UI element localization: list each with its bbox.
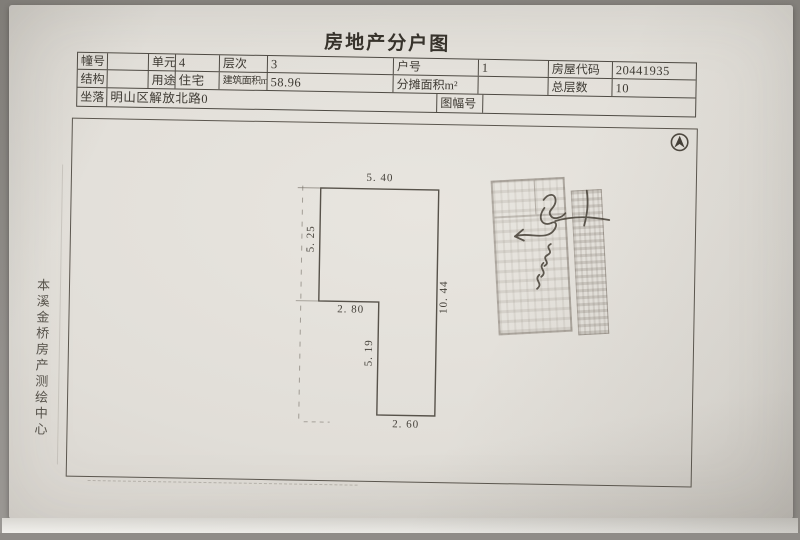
field-value-shared-area bbox=[478, 77, 548, 95]
agency-vertical-label: 本溪金桥房产测绘中心 bbox=[30, 278, 52, 453]
dimension-label-lower-inner-height: 5. 19 bbox=[363, 339, 375, 366]
drawing-area: 5. 40 5. 25 10. 44 2. 80 5. 19 2. 60 bbox=[66, 118, 698, 488]
field-value-floor: 3 bbox=[268, 56, 394, 74]
field-label-building-area: 建筑面积m² bbox=[219, 72, 267, 90]
stamp-divider bbox=[533, 180, 536, 214]
field-label-unit: 单元 bbox=[149, 54, 176, 70]
field-value-total-floors: 10 bbox=[612, 79, 695, 97]
field-value-usage: 住宅 bbox=[175, 71, 219, 89]
north-arrow-icon bbox=[668, 131, 690, 153]
photo-background: 房地产分户图 幢号 单元 4 层次 3 户号 1 房屋代码 20441935 结… bbox=[0, 0, 800, 533]
field-value-household-no: 1 bbox=[479, 60, 549, 77]
field-label-shared-area: 分摊面积m² bbox=[393, 75, 478, 93]
field-label-household-no: 户号 bbox=[394, 58, 479, 75]
field-label-total-floors: 总层数 bbox=[548, 78, 612, 96]
field-label-house-code: 房屋代码 bbox=[549, 61, 613, 78]
field-value-structure bbox=[107, 70, 148, 88]
paper-crease-line bbox=[57, 164, 63, 464]
stamp-left bbox=[491, 177, 573, 336]
dimension-label-top-width: 5. 40 bbox=[366, 172, 393, 184]
field-label-usage: 用途 bbox=[148, 71, 175, 88]
field-value-map-sheet-no bbox=[483, 95, 695, 117]
field-value-house-code: 20441935 bbox=[613, 62, 696, 79]
field-label-building-no: 幢号 bbox=[78, 53, 108, 70]
field-value-unit: 4 bbox=[176, 54, 220, 71]
dimension-label-step-width: 2. 80 bbox=[337, 303, 364, 315]
dimension-label-upper-left-height: 5. 25 bbox=[305, 225, 317, 252]
field-label-map-sheet-no: 图幅号 bbox=[437, 94, 483, 113]
document: 房地产分户图 幢号 单元 4 层次 3 户号 1 房屋代码 20441935 结… bbox=[0, 0, 800, 540]
stamp-divider bbox=[494, 213, 564, 218]
field-label-location: 坐落 bbox=[77, 88, 107, 107]
dimension-label-right-height: 10. 44 bbox=[438, 280, 451, 314]
photo-bottom-light-strip bbox=[2, 518, 798, 533]
stamp-right bbox=[571, 189, 610, 335]
property-info-table: 幢号 单元 4 层次 3 户号 1 房屋代码 20441935 结构 用途 住宅… bbox=[76, 52, 697, 118]
field-label-structure: 结构 bbox=[77, 70, 107, 88]
field-value-building-area: 58.96 bbox=[267, 73, 393, 92]
field-label-floor: 层次 bbox=[220, 55, 268, 72]
dimension-label-bottom-width: 2. 60 bbox=[392, 418, 419, 430]
field-value-building-no bbox=[108, 53, 149, 70]
